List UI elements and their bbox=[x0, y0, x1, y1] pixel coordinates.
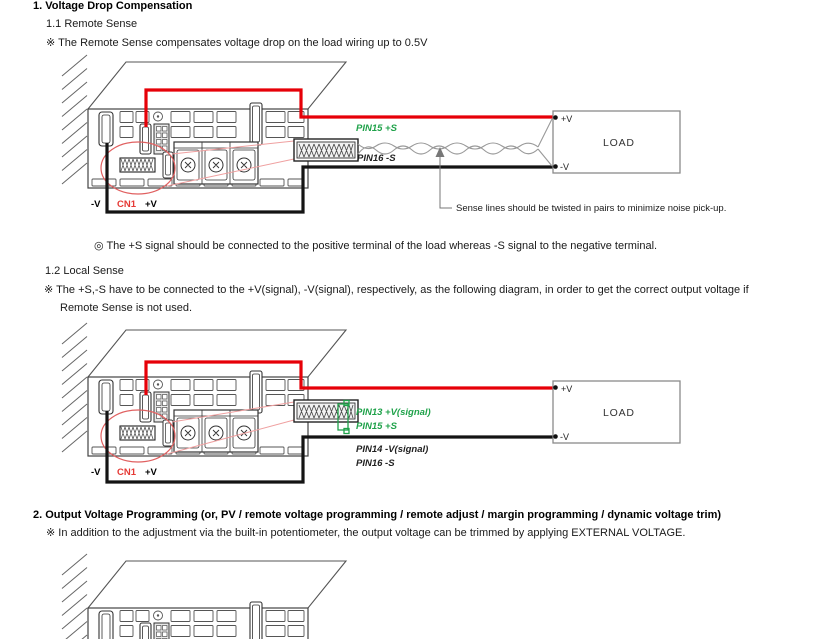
load-plus-label: +V bbox=[561, 114, 572, 124]
pin15-label: PIN15 +S bbox=[356, 123, 398, 134]
load-box: +V -V LOAD bbox=[553, 111, 680, 173]
load-box: +V -V LOAD bbox=[553, 381, 680, 443]
load-label: LOAD bbox=[603, 407, 635, 419]
pin16-label: PIN16 -S bbox=[357, 153, 396, 164]
sense-note-pointer bbox=[436, 147, 453, 208]
load-plus-label: +V bbox=[561, 384, 572, 394]
manual-page: 1. Voltage Drop Compensation 1.1 Remote … bbox=[0, 0, 830, 639]
load-minus-label: -V bbox=[560, 162, 569, 172]
load-label: LOAD bbox=[603, 137, 635, 149]
diagram2-local-sense: PIN13 +V(signal) PIN15 +S PIN14 -V(signa… bbox=[62, 323, 680, 482]
load-minus-label: -V bbox=[560, 432, 569, 442]
diagram1-remote-sense: PIN15 +S PIN16 -S Sense lines should be … bbox=[62, 55, 726, 214]
pin13-label: PIN13 +V(signal) bbox=[356, 407, 431, 418]
wiring-diagrams: -V CN1 +V PIN15 +S PIN bbox=[0, 0, 830, 639]
diagram3-partial-psu bbox=[62, 554, 346, 639]
sense-note-text: Sense lines should be twisted in pairs t… bbox=[456, 203, 726, 214]
pin16-label: PIN16 -S bbox=[356, 458, 395, 469]
pin15-label: PIN15 +S bbox=[356, 421, 398, 432]
pin14-label: PIN14 -V(signal) bbox=[356, 444, 428, 455]
